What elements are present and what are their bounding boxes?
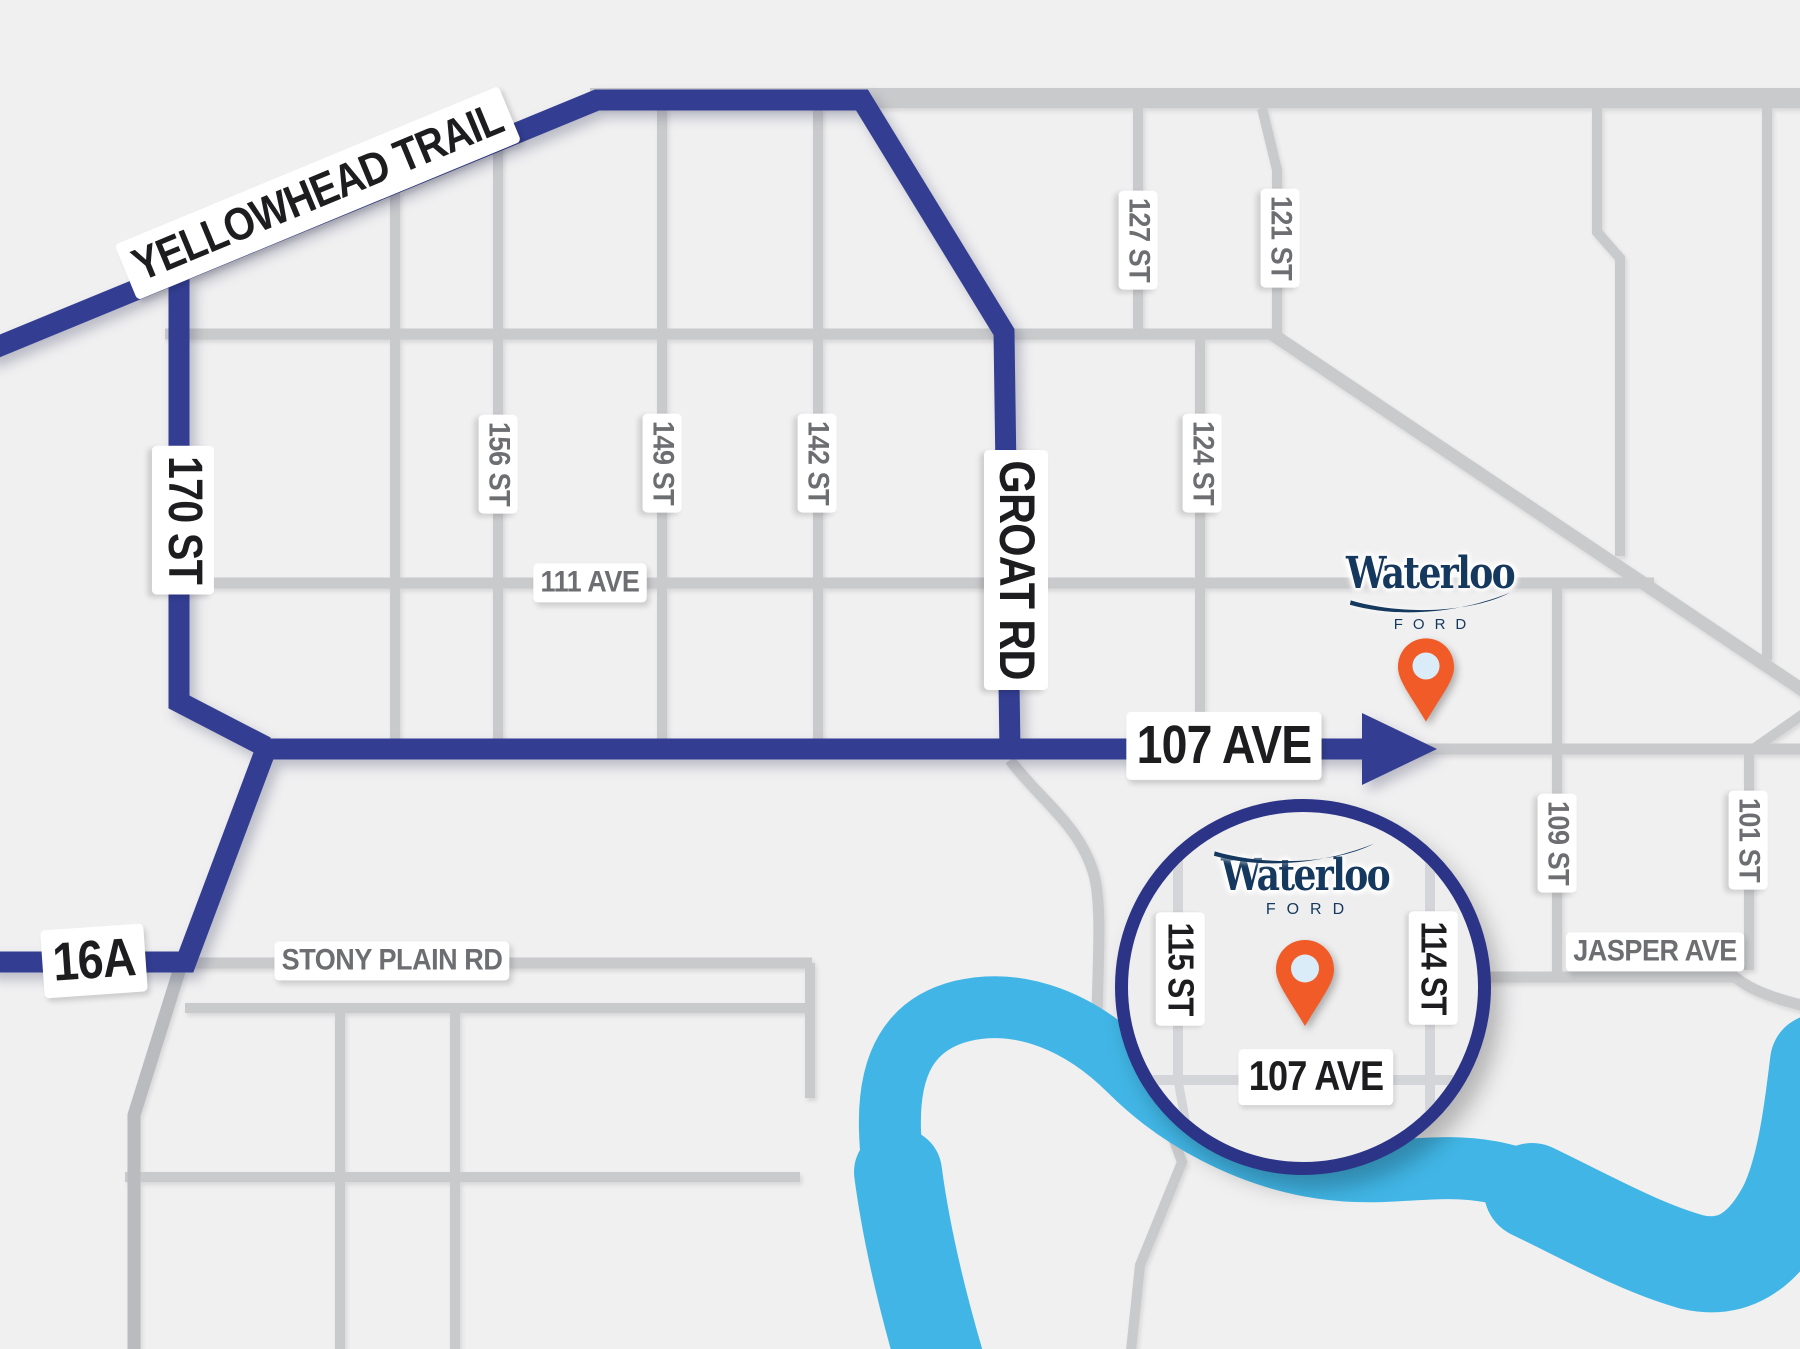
inset-circle: Waterloo FORD 115 ST114 ST107 AVE bbox=[1115, 799, 1491, 1175]
label-groat-rd: GROAT RD bbox=[984, 450, 1048, 690]
labels-layer: YELLOWHEAD TRAIL170 STGROAT RD107 AVE16A… bbox=[0, 0, 1800, 1349]
label-121-st: 121 ST bbox=[1260, 189, 1299, 288]
label-107-ave: 107 AVE bbox=[1126, 712, 1321, 780]
map-canvas: Waterloo FORD YELLOWHEAD TRAIL170 STGROA… bbox=[0, 0, 1800, 1349]
label-149-st: 149 ST bbox=[642, 414, 681, 513]
label-jasper-ave: JASPER AVE bbox=[1566, 932, 1744, 971]
label-127-st: 127 ST bbox=[1118, 191, 1157, 290]
label-101-st: 101 ST bbox=[1728, 791, 1767, 890]
label-109-st: 109 ST bbox=[1537, 794, 1576, 893]
label-16a: 16A bbox=[40, 923, 148, 998]
label-107-ave: 107 AVE bbox=[1238, 1049, 1393, 1105]
label-142-st: 142 ST bbox=[797, 414, 836, 513]
inset-labels-layer: 115 ST114 ST107 AVE bbox=[1128, 812, 1478, 1162]
label-170-st: 170 ST bbox=[152, 446, 214, 595]
label-stony-plain-rd: STONY PLAIN RD bbox=[274, 941, 509, 980]
label-124-st: 124 ST bbox=[1182, 414, 1221, 513]
label-111-ave: 111 AVE bbox=[533, 563, 646, 602]
label-156-st: 156 ST bbox=[478, 415, 517, 514]
label-115-st: 115 ST bbox=[1155, 912, 1204, 1026]
label-114-st: 114 ST bbox=[1408, 911, 1457, 1025]
label-yellowhead-trail: YELLOWHEAD TRAIL bbox=[115, 86, 522, 300]
